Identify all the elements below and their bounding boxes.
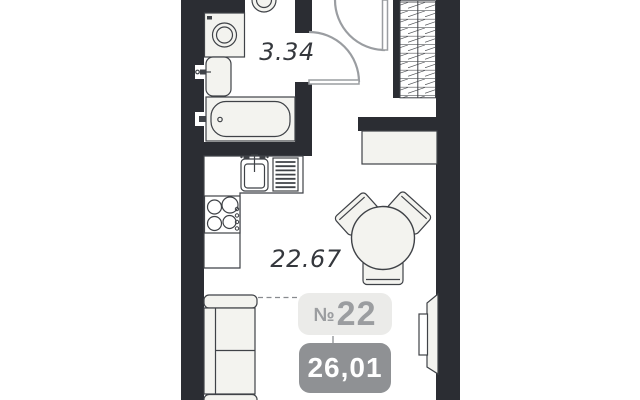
dining-group — [334, 190, 432, 284]
wall-right — [436, 0, 460, 400]
main-room-area-label: 22.67 — [268, 245, 344, 273]
entry-door-swing-arc — [335, 0, 385, 50]
unit-number: 22 — [337, 297, 377, 331]
bathroom-fixtures — [196, 0, 295, 141]
unit-number-badge: № 22 — [298, 293, 392, 335]
radiator-panel-inner — [419, 314, 428, 355]
washing-machine-icon — [205, 13, 245, 57]
wall-bathroom-bottom — [181, 142, 312, 156]
kitchen-faucet-handle-right — [260, 156, 266, 159]
radiator-panel-icon — [419, 294, 438, 374]
toilet-icon — [252, 0, 276, 12]
console-table-icon — [362, 131, 437, 164]
dining-table-icon — [352, 207, 415, 270]
bathroom-door-leaf — [309, 80, 359, 84]
wall-bathroom-right-upper — [295, 0, 312, 33]
kitchen-faucet-dot-left — [240, 156, 242, 158]
bathroom-sink-icon — [206, 57, 231, 96]
kitchen-faucet-dot-right — [266, 156, 268, 158]
sofa-armrest-top — [204, 295, 257, 308]
wall-top — [181, 0, 245, 13]
sofa-icon — [204, 295, 257, 400]
unit-total-area: 26,01 — [307, 352, 382, 384]
wardrobe-icon — [400, 1, 436, 98]
dish-rack-slats — [276, 162, 296, 187]
unit-number-prefix: № — [313, 305, 334, 327]
wardrobe-hatch-right — [418, 1, 436, 98]
sofa-armrest-bottom — [204, 395, 257, 400]
wall-left — [181, 0, 204, 400]
washing-machine-panel — [207, 16, 212, 20]
entry-door-leaf — [383, 0, 388, 50]
bathroom-area-label: 3.34 — [250, 38, 324, 66]
floor-plan: 3.34 22.67 № 22 26,01 — [0, 0, 640, 400]
wall-kitchen-bar — [358, 117, 436, 131]
wardrobe-hatch-left — [401, 1, 418, 98]
kitchen-faucet-handle-left — [244, 156, 250, 159]
unit-total-area-badge: 26,01 — [299, 343, 391, 393]
bathroom-sink-tap — [200, 70, 206, 75]
bathtub-tap — [199, 116, 206, 122]
radiator-panel-outer — [427, 294, 438, 374]
